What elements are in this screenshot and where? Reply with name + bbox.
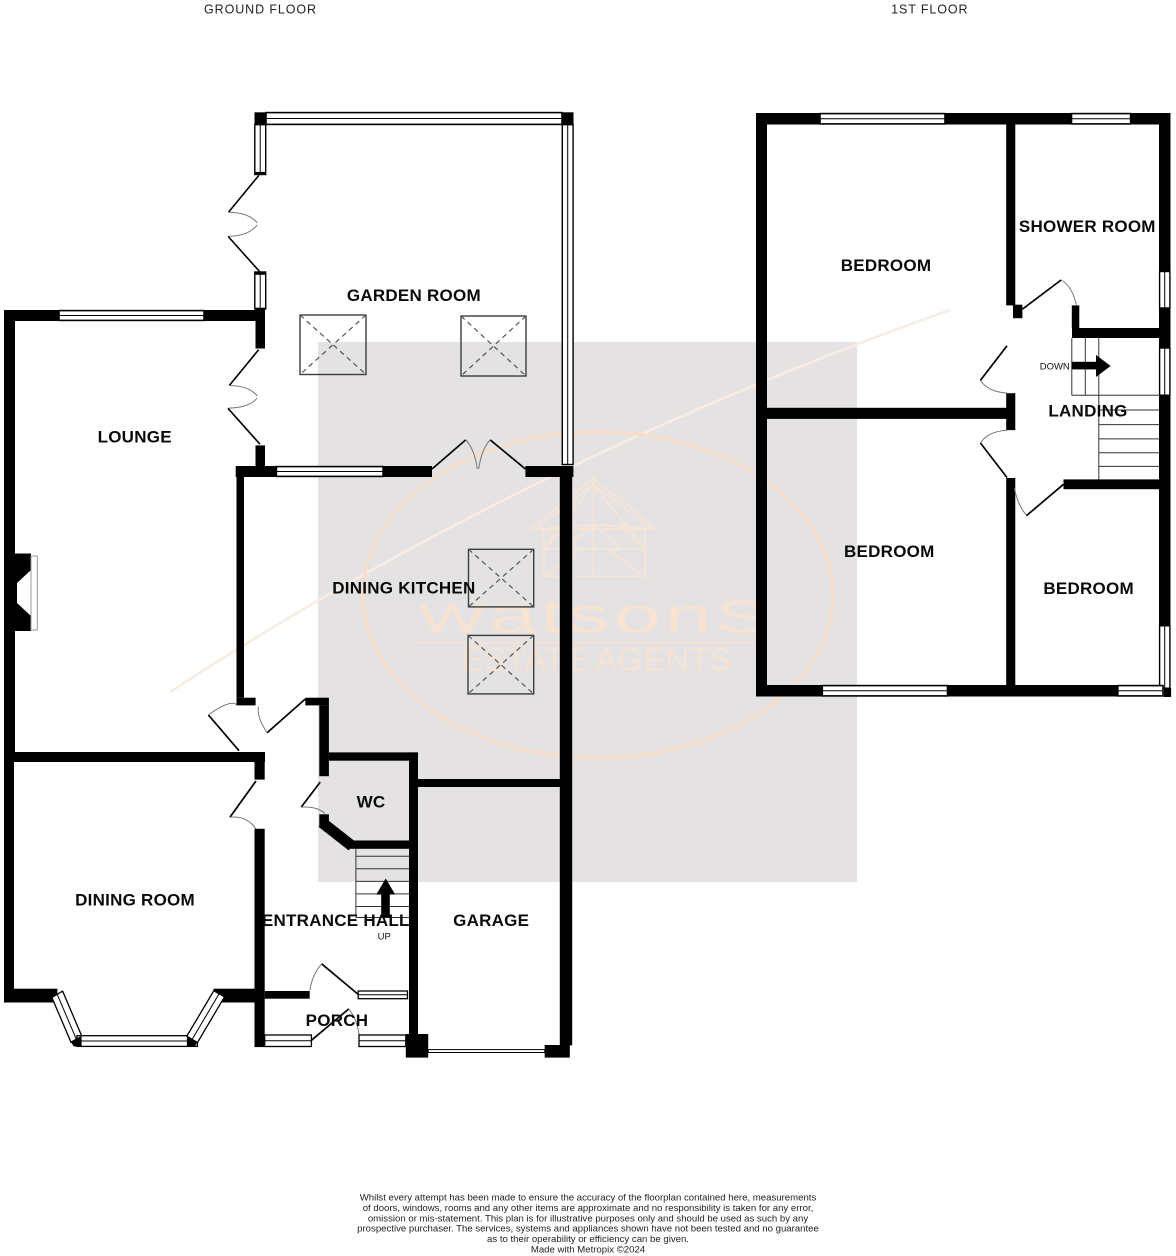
svg-text:of doors, windows, rooms and a: of doors, windows, rooms and any other i… bbox=[363, 1203, 814, 1214]
svg-text:LOUNGE: LOUNGE bbox=[98, 427, 172, 446]
svg-text:Made with Metropix ©2024: Made with Metropix ©2024 bbox=[531, 1245, 646, 1256]
svg-text:GARDEN ROOM: GARDEN ROOM bbox=[347, 286, 481, 305]
svg-text:BEDROOM: BEDROOM bbox=[844, 542, 935, 561]
svg-text:PORCH: PORCH bbox=[306, 1011, 369, 1030]
svg-text:UP: UP bbox=[378, 932, 391, 943]
svg-text:as to their operability or eff: as to their operability or efficiency ca… bbox=[487, 1234, 689, 1245]
svg-text:DINING ROOM: DINING ROOM bbox=[75, 891, 195, 910]
svg-text:omission or mis-statement. Thi: omission or mis-statement. This plan is … bbox=[368, 1213, 808, 1224]
svg-text:BEDROOM: BEDROOM bbox=[1043, 579, 1134, 598]
svg-text:WC: WC bbox=[357, 793, 386, 812]
svg-text:SHOWER ROOM: SHOWER ROOM bbox=[1019, 217, 1156, 236]
svg-text:GARAGE: GARAGE bbox=[453, 911, 529, 930]
svg-text:BEDROOM: BEDROOM bbox=[841, 256, 932, 275]
svg-text:ESTATE AGENTS: ESTATE AGENTS bbox=[462, 642, 732, 678]
svg-text:DINING KITCHEN: DINING KITCHEN bbox=[332, 578, 475, 597]
svg-text:prospective purchaser. The ser: prospective purchaser. The services, sys… bbox=[357, 1224, 819, 1235]
svg-text:1ST FLOOR: 1ST FLOOR bbox=[891, 3, 968, 17]
svg-text:ENTRANCE HALL: ENTRANCE HALL bbox=[262, 911, 410, 930]
svg-text:Whilst every attempt has been: Whilst every attempt has been made to en… bbox=[360, 1193, 817, 1204]
svg-text:LANDING: LANDING bbox=[1048, 401, 1127, 420]
svg-text:DOWN: DOWN bbox=[1040, 362, 1070, 373]
svg-text:GROUND FLOOR: GROUND FLOOR bbox=[204, 3, 317, 17]
